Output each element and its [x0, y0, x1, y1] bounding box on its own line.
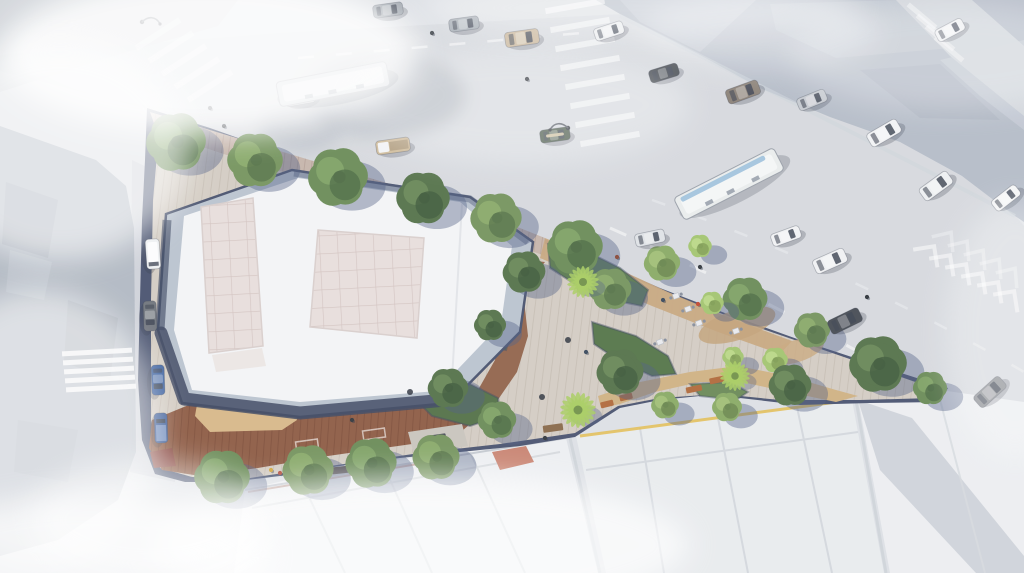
site-plan-rendering	[0, 0, 1024, 573]
haze-veil	[0, 0, 1024, 573]
haze-overlay	[0, 0, 1024, 573]
aerial-rendering-canvas	[0, 0, 1024, 573]
